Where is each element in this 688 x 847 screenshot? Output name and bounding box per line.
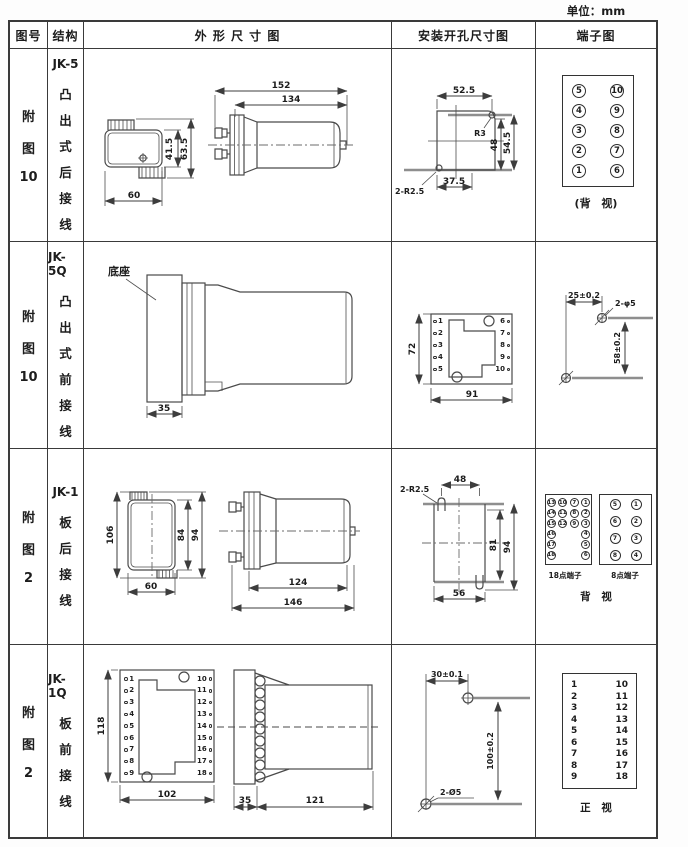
terminal-pin	[570, 551, 579, 560]
terminal-numbers-right: 101112131415161718	[615, 680, 628, 782]
dim-label: 2-φ5	[615, 299, 636, 308]
terminal-number: 10	[615, 680, 628, 690]
pin-number: 1	[124, 675, 134, 683]
dim-label: 37.5	[443, 177, 465, 187]
structure-jk5q: JK-5Q 凸出式前接线	[48, 242, 84, 449]
hole-number: 7	[500, 329, 510, 338]
fig-char: 图	[22, 338, 35, 357]
terminal-pin: 1	[581, 498, 590, 507]
terminal-pin: 2	[581, 509, 590, 518]
terminal-pin-drawing	[229, 502, 244, 562]
pin-number: 8	[124, 757, 134, 765]
fig-char: 附	[22, 306, 35, 325]
fig-char: 附	[22, 702, 35, 721]
terminal-number: 12	[615, 703, 628, 713]
pin-number: 7	[124, 746, 134, 754]
dim-label: 72	[408, 343, 418, 356]
hole-dot-icon	[209, 724, 213, 728]
hole-dot-icon	[124, 677, 128, 681]
terminal-pin: 10	[610, 84, 624, 98]
dim-label: 134	[282, 95, 301, 105]
pin-number: 4	[124, 710, 134, 718]
structure-char: 线	[59, 590, 72, 609]
hole-dot-icon	[433, 356, 437, 360]
terminal-pin: 15	[547, 519, 556, 528]
structure-char: 凸	[59, 84, 72, 103]
terminal-number: 8	[571, 761, 577, 771]
hole-dot-icon	[124, 748, 128, 752]
dim-label: 91	[466, 390, 479, 400]
terminal-number: 16	[615, 749, 628, 759]
terminal-box-18: 131071141182151293164175186	[545, 494, 592, 565]
pin-number: 3	[124, 699, 134, 707]
dim-label: 2-R2.5	[395, 187, 425, 196]
hole-dot-icon	[124, 724, 128, 728]
terminal-box: 51049382716	[562, 75, 634, 187]
terminal-bumps-drawing	[255, 676, 265, 782]
jk5q-drill-svg: 25±0.2 2-φ5 58±0.2	[536, 242, 656, 449]
hole-dot-icon	[124, 701, 128, 705]
structure-char: 板	[59, 512, 72, 531]
fig-no-jk1: 附图2	[10, 449, 48, 645]
hole-dot-icon	[209, 689, 213, 693]
hole-dot-icon	[209, 736, 213, 740]
dim-label: 2-R2.5	[400, 485, 430, 494]
hole-dot-icon	[209, 772, 213, 776]
dim-label: 94	[503, 541, 513, 554]
terminal-number: 1	[571, 680, 577, 690]
dim-label: 84	[177, 529, 187, 542]
dim-label: 2-Ø5	[440, 787, 462, 797]
terminal-pin: 14	[547, 509, 556, 518]
view-caption: 背 视	[536, 589, 656, 604]
structure-char: 接	[59, 395, 72, 414]
jk1q-mounting-svg: 30±0.1 100±0.2 2-Ø5	[392, 645, 536, 837]
structure-char: 接	[59, 765, 72, 784]
hole-dot-icon	[209, 701, 213, 705]
fig-char: 附	[22, 106, 35, 125]
dim-label: 56	[453, 589, 466, 599]
terminal-pin: 9	[570, 519, 579, 528]
model-label: JK-1	[52, 485, 78, 499]
hole-dot-icon	[507, 356, 511, 360]
terminal-diagram-jk1q: 123456789 101112131415161718 正 视	[536, 645, 656, 837]
outline-drawing-jk1: 106 84 94 60 124 14	[84, 449, 392, 645]
terminal-pin: 6	[610, 164, 624, 178]
terminal-pin: 6	[581, 551, 590, 560]
structure-char: 后	[59, 538, 72, 557]
terminal-pin: 2	[572, 144, 586, 158]
terminal-pin: 4	[572, 104, 586, 118]
terminal-number: 3	[571, 703, 577, 713]
header-outline-dims: 外 形 尺 寸 图	[84, 22, 392, 49]
structure-jk1: JK-1 板后接线	[48, 449, 84, 645]
dim-label: 60	[145, 582, 158, 592]
outline-drawing-jk1q: 118 102 35 121 123456789 101112131	[84, 645, 392, 837]
structure-char: 式	[59, 343, 72, 362]
dim-label: 102	[158, 790, 177, 800]
terminal-18-label: 18点端子	[536, 570, 594, 581]
hole-number: 8	[500, 341, 510, 350]
fig-no-jk5q: 附图10	[10, 242, 48, 449]
dim-label: 63.5	[180, 138, 190, 160]
terminal-number: 2	[571, 692, 577, 702]
terminal-box: 123456789 101112131415161718	[562, 673, 637, 789]
fig-char: 10	[19, 370, 37, 385]
fig-char: 2	[24, 766, 33, 781]
hole-number: 3	[433, 341, 443, 350]
hole-dot-icon	[209, 748, 213, 752]
terminal-number: 5	[571, 726, 577, 736]
terminal-number: 18	[615, 772, 628, 782]
terminal-pin: 7	[570, 498, 579, 507]
terminal-pin: 9	[610, 104, 624, 118]
hole-dot-icon	[209, 713, 213, 717]
terminal-pin: 8	[570, 509, 579, 518]
terminal-pin	[570, 530, 579, 539]
terminal-pin: 3	[581, 519, 590, 528]
hole-dot-icon	[507, 320, 511, 324]
fig-char: 附	[22, 507, 35, 526]
hole-dot-icon	[433, 368, 437, 372]
header-mounting-holes: 安装开孔尺寸图	[392, 22, 536, 49]
structure-jk5: JK-5 凸出式后接线	[48, 49, 84, 242]
header-fig-no: 图号	[10, 22, 48, 49]
terminal-pin: 8	[610, 550, 621, 561]
fig-no-jk1q: 附图2	[10, 645, 48, 837]
structure-char: 后	[59, 162, 72, 181]
terminal-number: 4	[571, 715, 577, 725]
hole-numbers-left: 12345	[433, 317, 443, 374]
terminal-pin: 7	[610, 533, 621, 544]
dim-label: 58±0.2	[613, 332, 622, 364]
dim-label: 48	[454, 475, 467, 485]
hole-dot-icon	[507, 332, 511, 336]
hole-dot-icon	[433, 344, 437, 348]
structure-char: 式	[59, 136, 72, 155]
pin-number: 16	[197, 746, 212, 754]
dim-label: 60	[128, 191, 141, 201]
fig-no-jk5: 附图10	[10, 49, 48, 242]
hole-number: 6	[500, 317, 510, 326]
terminal-diagram-jk5q: 25±0.2 2-φ5 58±0.2	[536, 242, 656, 449]
jk1-mounting-svg: 48 2-R2.5 81 94 56	[392, 449, 536, 645]
mounting-drawing-jk1q: 30±0.1 100±0.2 2-Ø5	[392, 645, 536, 837]
dim-label: 146	[284, 598, 303, 608]
dim-label: 41.5	[165, 138, 175, 160]
terminal-pin: 5	[581, 540, 590, 549]
terminal-pin	[558, 540, 567, 549]
header-terminals: 端子图	[536, 22, 656, 49]
terminal-number: 11	[615, 692, 628, 702]
hole-dot-icon	[507, 344, 511, 348]
pin-number: 10	[197, 675, 212, 683]
terminal-pin: 17	[547, 540, 556, 549]
view-caption: 正 视	[536, 800, 656, 815]
hole-dot-icon	[433, 332, 437, 336]
terminal-number: 9	[571, 772, 577, 782]
terminal-numbers-left: 123456789	[571, 680, 577, 782]
dim-label: 35	[239, 796, 252, 806]
mounting-drawing-jk1: 48 2-R2.5 81 94 56	[392, 449, 536, 645]
terminal-number: 17	[615, 761, 628, 771]
hole-dot-icon	[124, 713, 128, 717]
pin-number: 6	[124, 734, 134, 742]
terminal-pin: 6	[610, 516, 621, 527]
terminal-pin: 3	[572, 124, 586, 138]
mounting-drawing-jk5q: 72 91 12345 678910	[392, 242, 536, 449]
dim-label: 121	[306, 796, 325, 806]
terminal-pin: 5	[572, 84, 586, 98]
terminal-pin	[558, 551, 567, 560]
structure-char: 线	[59, 791, 72, 810]
terminal-number: 7	[571, 749, 577, 759]
structure-char: 出	[59, 110, 72, 129]
pin-number: 15	[197, 734, 212, 742]
outline-drawing-jk5q: 底座 35	[84, 242, 392, 449]
dim-label: 118	[97, 717, 107, 736]
pin-number: 2	[124, 687, 134, 695]
terminal-number: 6	[571, 738, 577, 748]
dim-label: 106	[106, 526, 116, 545]
hole-numbers-right: 678910	[488, 317, 510, 374]
structure-jk1q: JK-1Q 板前接线	[48, 645, 84, 837]
terminal-pin	[570, 540, 579, 549]
dim-label: 54.5	[503, 132, 513, 154]
structure-char: 凸	[59, 291, 72, 310]
hole-dot-icon	[124, 689, 128, 693]
terminal-pin: 11	[558, 509, 567, 518]
dim-label: 152	[272, 81, 291, 91]
pin-number: 14	[197, 722, 212, 730]
terminal-pin: 16	[547, 530, 556, 539]
pin-number: 18	[197, 769, 212, 777]
structure-char: 板	[59, 713, 72, 732]
outline-drawing-jk5: 60 41.5 63.5 152 134	[84, 49, 392, 242]
structure-char: 接	[59, 188, 72, 207]
terminal-pin: 1	[572, 164, 586, 178]
terminal-diagram-jk1: 131071141182151293164175186 51627384 18点…	[536, 449, 656, 645]
structure-char: 前	[59, 369, 72, 388]
fig-char: 图	[22, 539, 35, 558]
hole-dot-icon	[209, 677, 213, 681]
dim-label: 30±0.1	[431, 670, 463, 679]
fig-char: 10	[19, 170, 37, 185]
terminal-diagram-jk5: 51049382716 (背 视)	[536, 49, 656, 242]
dim-label: 124	[289, 578, 308, 588]
hole-number: 4	[433, 353, 443, 362]
dim-label: 25±0.2	[568, 291, 600, 300]
terminal-pin: 4	[631, 550, 642, 561]
front-pins-right: 101112131415161718	[186, 675, 212, 777]
hole-dot-icon	[433, 320, 437, 324]
jk5-outline-svg: 60 41.5 63.5 152 134	[84, 49, 392, 242]
terminal-pin: 13	[547, 498, 556, 507]
terminal-pin: 7	[610, 144, 624, 158]
dim-label: 100±0.2	[486, 732, 495, 770]
fig-char: 2	[24, 571, 33, 586]
hole-number: 2	[433, 329, 443, 338]
jk5q-outline-svg: 底座 35	[84, 242, 392, 449]
terminal-pin: 3	[631, 533, 642, 544]
hole-number: 1	[433, 317, 443, 326]
terminal-pin-drawing	[215, 128, 230, 159]
pin-number: 17	[197, 757, 212, 765]
terminal-pin: 8	[610, 124, 624, 138]
front-pins-left: 123456789	[124, 675, 134, 777]
terminal-pin: 5	[610, 499, 621, 510]
hole-dot-icon	[124, 760, 128, 764]
header-structure: 结构	[48, 22, 84, 49]
jk5-mounting-svg: R3 52.5 48 54.5 37.5 2-R2.5	[392, 49, 536, 242]
model-label: JK-5	[52, 57, 78, 71]
pin-number: 13	[197, 710, 212, 718]
hole-number: 5	[433, 365, 443, 374]
structure-char: 前	[59, 739, 72, 758]
terminal-pin: 12	[558, 519, 567, 528]
terminal-number: 15	[615, 738, 628, 748]
hole-dot-icon	[124, 772, 128, 776]
base-label: 底座	[108, 264, 130, 278]
pin-number: 5	[124, 722, 134, 730]
terminal-box-8: 51627384	[599, 494, 652, 565]
hole-number: 10	[495, 365, 510, 374]
structure-char: 线	[59, 214, 72, 233]
dim-label: 48	[490, 139, 500, 152]
dim-label: 81	[489, 539, 499, 552]
view-caption: (背 视)	[536, 195, 656, 211]
terminal-number: 13	[615, 715, 628, 725]
terminal-pin: 1	[631, 499, 642, 510]
structure-char: 出	[59, 317, 72, 336]
fig-char: 图	[22, 734, 35, 753]
dim-label: R3	[474, 129, 486, 138]
hole-dot-icon	[124, 736, 128, 740]
pin-number: 11	[197, 687, 212, 695]
terminal-8-label: 8点端子	[594, 570, 656, 581]
pin-number: 12	[197, 699, 212, 707]
terminal-number: 14	[615, 726, 628, 736]
dim-label: 94	[191, 529, 201, 542]
structure-char: 线	[59, 421, 72, 440]
unit-label: 单位：mm	[534, 3, 658, 19]
hole-number: 9	[500, 353, 510, 362]
model-label: JK-1Q	[48, 672, 83, 700]
jk5q-mounting-svg: 72 91	[392, 242, 536, 449]
model-label: JK-5Q	[48, 250, 83, 278]
terminal-pin: 10	[558, 498, 567, 507]
dim-label: 35	[158, 404, 171, 414]
terminal-pin	[558, 530, 567, 539]
terminal-pin: 18	[547, 551, 556, 560]
dim-label: 52.5	[453, 86, 475, 96]
terminal-pin: 2	[631, 516, 642, 527]
spec-table: 图号 结构 外 形 尺 寸 图 安装开孔尺寸图 端子图 附图10 JK-5 凸出…	[8, 20, 658, 839]
structure-char: 接	[59, 564, 72, 583]
fig-char: 图	[22, 138, 35, 157]
mounting-drawing-jk5: R3 52.5 48 54.5 37.5 2-R2.5	[392, 49, 536, 242]
pin-number: 9	[124, 769, 134, 777]
hole-dot-icon	[209, 760, 213, 764]
terminal-pin: 4	[581, 530, 590, 539]
jk1-outline-svg: 106 84 94 60 124 14	[84, 449, 392, 645]
hole-dot-icon	[507, 368, 511, 372]
